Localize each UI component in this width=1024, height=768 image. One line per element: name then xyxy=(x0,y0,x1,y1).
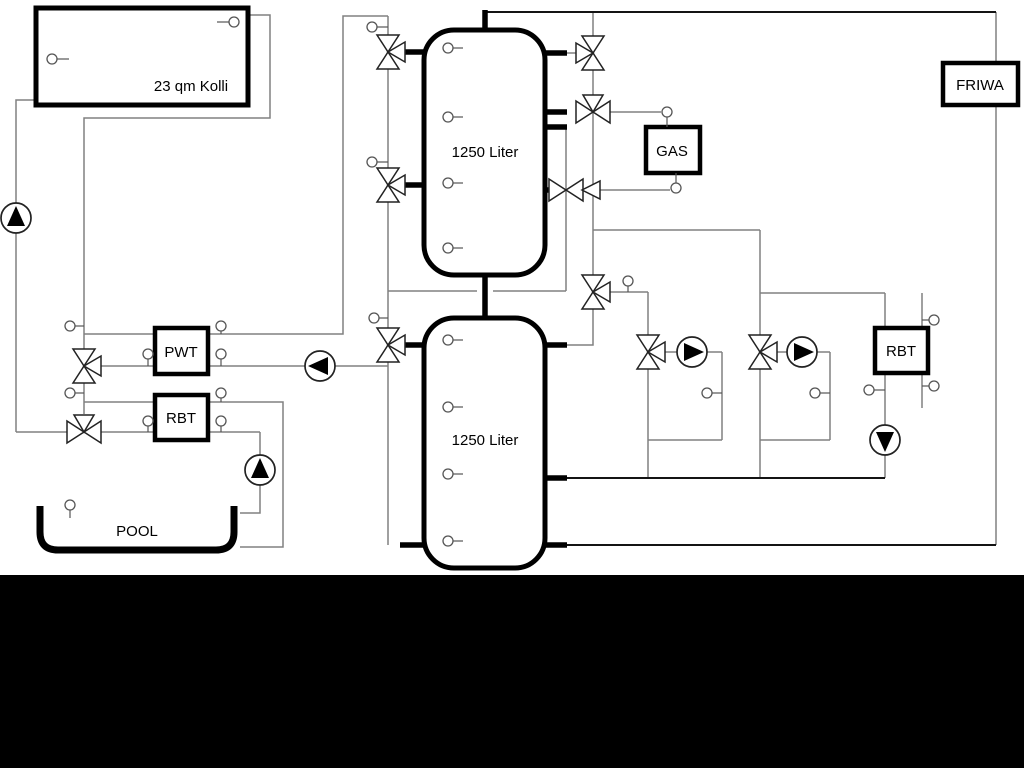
tank-lower-label: 1250 Liter xyxy=(452,432,519,449)
rbt-left-label: RBT xyxy=(166,410,196,427)
pwt-label: PWT xyxy=(164,344,197,361)
valve-solar-pool xyxy=(67,415,101,443)
gas-label: GAS xyxy=(656,143,688,160)
pool-label: POOL xyxy=(116,523,158,540)
rbt-right-label: RBT xyxy=(886,343,916,360)
heating-circuit-2-pump-icon xyxy=(787,337,817,367)
collector-label: 23 qm Kolli xyxy=(154,78,228,95)
schematic-page: 23 qm Kolli 1250 Liter 1250 Liter GAS FR… xyxy=(0,0,1024,768)
valve-circuit1-mixer xyxy=(637,335,665,369)
valve-heating-header xyxy=(582,275,610,309)
friwa-label: FRIWA xyxy=(956,77,1004,94)
tank-upper-label: 1250 Liter xyxy=(452,144,519,161)
rbt-lower-pipe xyxy=(16,432,260,513)
valve-tank1-top-left xyxy=(377,35,405,69)
valve-solar-pwt xyxy=(73,349,101,383)
pool-pump-icon xyxy=(245,455,275,485)
valve-tank2-top-left xyxy=(377,328,405,362)
heating-circuit-1-pump-icon xyxy=(677,337,707,367)
solar-pump-icon xyxy=(1,203,31,233)
circuit1-supply-pipe xyxy=(593,292,648,478)
pwt-primary-pump-icon xyxy=(305,351,335,381)
bottom-black-bar xyxy=(0,575,1024,768)
rbt-right-pump-icon xyxy=(870,425,900,455)
hydraulic-schematic: 23 qm Kolli 1250 Liter 1250 Liter GAS FR… xyxy=(0,0,1024,768)
valve-tank1-top-right xyxy=(576,36,604,70)
valve-tank1-mid-left xyxy=(377,168,405,202)
solar-return-pipe xyxy=(16,100,36,432)
main-pipes xyxy=(485,12,996,545)
valve-circuit2-mixer xyxy=(749,335,777,369)
